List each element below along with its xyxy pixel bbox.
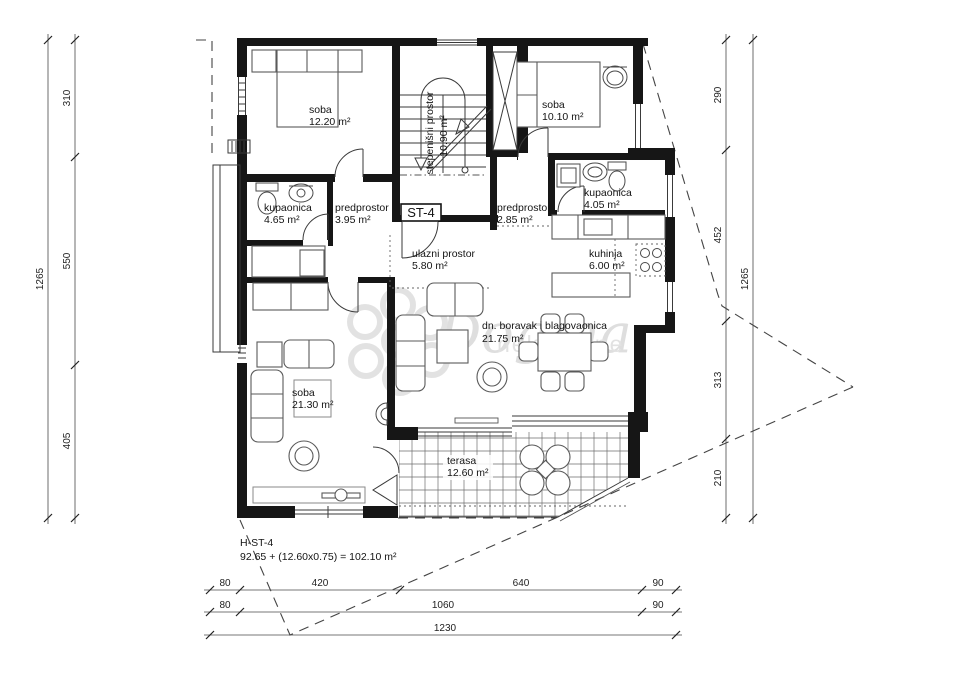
terrace: [399, 432, 630, 521]
window-top: [437, 38, 477, 46]
terrace-tiles: [399, 432, 628, 517]
window-right-bathroom: [665, 175, 675, 217]
unit-tag-label: ST-4: [407, 205, 434, 220]
window-left-upper: [237, 77, 247, 115]
room-label-terasa-area: 12.60 m²: [447, 467, 489, 479]
room-label-dnevni-name: dn. boravak i blagovaonica: [482, 320, 607, 332]
dim-left-seg-2: 405: [62, 432, 73, 449]
sink-kupaonica-1: [289, 184, 313, 202]
terrace-chairs: [520, 445, 570, 495]
room-label-predprostor-1-area: 3.95 m²: [335, 214, 371, 226]
room-label-predprostor-2-area: 2.85 m²: [497, 214, 533, 226]
shower-kupaonica-2: [557, 164, 580, 187]
room-label-ulazni-area: 5.80 m²: [412, 260, 448, 272]
room-label-stepenisni-area: 10.90 m²: [438, 115, 450, 157]
room-label-soba-3-area: 21.30 m²: [292, 399, 334, 411]
footer-note: H-ST-4 92.65 + (12.60x0.75) = 102.10 m²: [240, 537, 397, 563]
room-label-kupaonica-1-area: 4.65 m²: [264, 214, 300, 226]
dim-bottom-r2-1: 1060: [432, 600, 455, 611]
stove: [636, 244, 665, 276]
sink-soba-2: [603, 66, 627, 88]
dim-bottom-r1-1: 420: [312, 578, 329, 589]
dim-bottom-r3-0: 1230: [434, 623, 457, 634]
wall-basin-soba-3: [376, 403, 387, 425]
armchair-soba-3: [289, 441, 319, 471]
room-label-predprostor-2-name: predprostor: [497, 202, 551, 214]
dim-bottom-r1-0: 80: [219, 578, 231, 589]
door-kupaonica-2: [558, 186, 584, 212]
closet-hall: [252, 246, 325, 277]
door-terrace: [373, 447, 399, 505]
room-label-stepenisni-name: stepenišni prostor: [424, 91, 436, 174]
elevator-shaft: [493, 52, 517, 150]
window-right-kitchen: [665, 282, 675, 312]
armchair-living: [477, 362, 507, 392]
desk-soba-3: [253, 487, 365, 503]
dim-bottom-r2-2: 90: [652, 600, 664, 611]
dim-right-seg-2: 313: [713, 371, 724, 388]
dim-bottom-r2-0: 80: [219, 600, 231, 611]
room-label-kupaonica-2-area: 4.05 m²: [584, 199, 620, 211]
door-kupaonica-1: [303, 214, 328, 240]
room-label-kupaonica-2-name: kupaonica: [584, 187, 632, 199]
room-label-soba-2-area: 10.10 m²: [542, 111, 584, 123]
room-label-kuhinja-area: 6.00 m²: [589, 260, 625, 272]
room-label-soba-2-name: soba: [542, 99, 565, 111]
door-soba-1: [335, 149, 363, 177]
footer-code: H-ST-4: [240, 537, 273, 549]
room-label-dnevni-area: 21.75 m²: [482, 333, 524, 345]
room-label-soba-1-name: soba: [309, 104, 332, 116]
room-label-kuhinja-name: kuhinja: [589, 248, 622, 260]
unit-tag: ST-4: [401, 204, 441, 221]
dim-right-seg-3: 210: [713, 469, 724, 486]
dim-right-total: 1265: [740, 267, 751, 290]
window-living-terrace: [418, 416, 628, 436]
closet-soba-3: [253, 283, 328, 310]
window-bottom: [295, 506, 363, 518]
window-right-bedroom: [633, 104, 643, 148]
dim-bottom-r1-3: 90: [652, 578, 664, 589]
room-label-kupaonica-1-name: kupaonica: [264, 202, 312, 214]
dim-right-seg-1: 452: [713, 226, 724, 243]
room-label-soba-1-area: 12.20 m²: [309, 116, 351, 128]
floor-plan-page: Dogma nekretnine 1265 310 550 405 126: [0, 0, 971, 682]
dim-left-seg-0: 310: [62, 89, 73, 106]
window-left-lower: [237, 345, 247, 363]
room-label-predprostor-1-name: predprostor: [335, 202, 389, 214]
floor-plan-canvas: Dogma nekretnine 1265 310 550 405 126: [0, 0, 971, 682]
side-ledge: [213, 165, 240, 352]
dim-left-total: 1265: [35, 267, 46, 290]
room-label-ulazni-name: ulazni prostor: [412, 248, 476, 260]
dim-left-seg-1: 550: [62, 252, 73, 269]
room-label-terasa-name: terasa: [447, 455, 476, 467]
footer-formula: 92.65 + (12.60x0.75) = 102.10 m²: [240, 551, 397, 563]
dim-right-seg-0: 290: [713, 86, 724, 103]
dim-bottom-r1-2: 640: [513, 578, 530, 589]
room-label-soba-3-name: soba: [292, 387, 315, 399]
door-soba-3: [328, 282, 358, 312]
sink-kupaonica-2: [583, 163, 607, 181]
